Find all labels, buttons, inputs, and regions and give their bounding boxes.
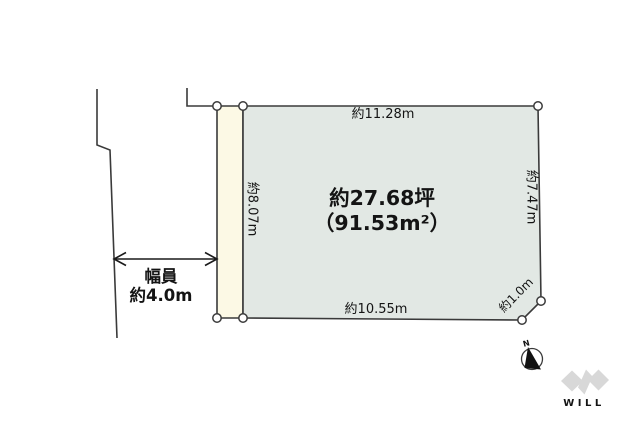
road-width-arrow (114, 253, 217, 266)
plot-diagram: 約11.28m 約10.55m 約8.07m 約7.47m 約1.0m 約27.… (0, 0, 640, 427)
vertex-marker (518, 316, 526, 324)
compass: N (522, 338, 543, 369)
area-label-sqm: （91.53m²） (314, 211, 450, 235)
logo-text: WILL (563, 398, 605, 409)
dimension-label-bottom: 約10.55m (345, 302, 408, 317)
dimension-label-top: 約11.28m (352, 107, 415, 122)
road-boundary-line (97, 89, 117, 338)
vertex-marker (537, 297, 545, 305)
dimension-label-right: 約7.47m (524, 170, 539, 225)
dimension-label-left: 約8.07m (245, 182, 260, 237)
vertex-marker (213, 102, 221, 110)
logo-diamond-icon (588, 370, 609, 391)
north-label: N (522, 338, 531, 348)
road-setback-strip (217, 106, 243, 318)
area-label-tsubo: 約27.68坪 (329, 186, 435, 210)
vertex-marker (534, 102, 542, 110)
neighbor-boundary-line (187, 88, 217, 106)
road-width-title: 幅員 (145, 266, 179, 286)
road-width-value: 約4.0m (130, 285, 193, 305)
will-logo: WILL (561, 370, 609, 410)
vertex-marker (239, 314, 247, 322)
vertex-marker (239, 102, 247, 110)
vertex-marker (213, 314, 221, 322)
